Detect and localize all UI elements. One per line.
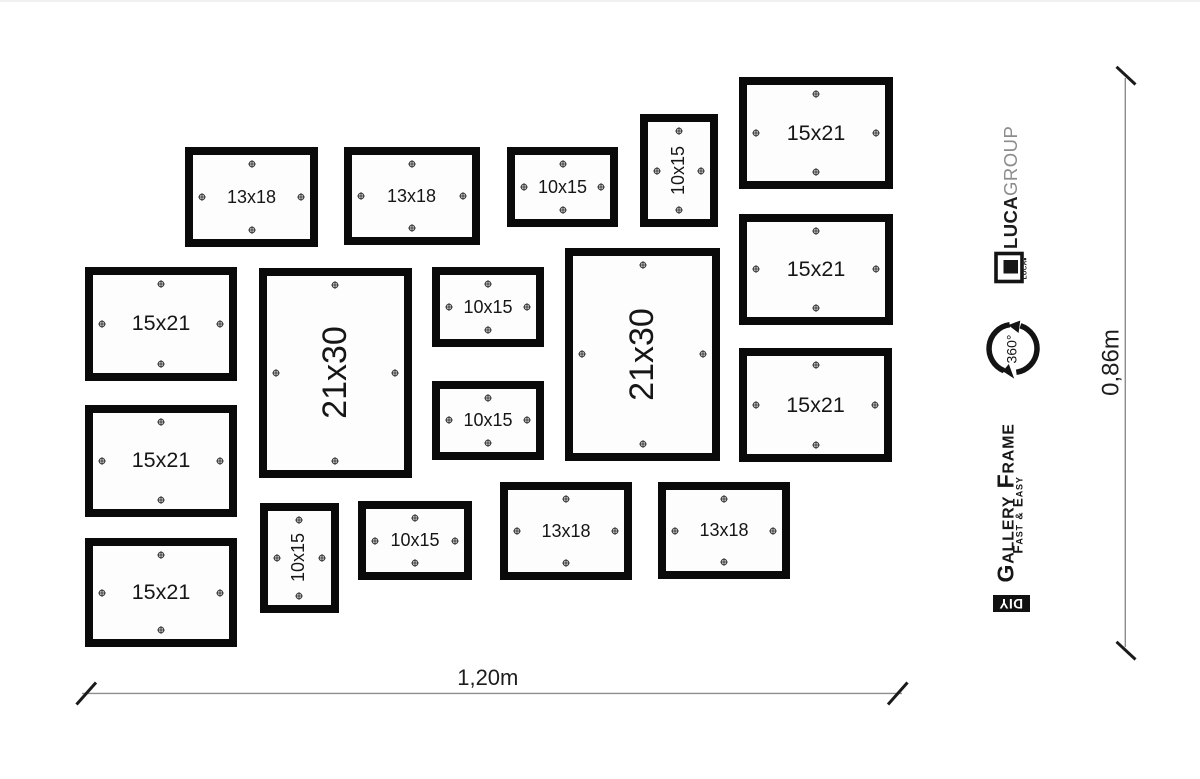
svg-text:360°: 360° xyxy=(1003,335,1019,364)
